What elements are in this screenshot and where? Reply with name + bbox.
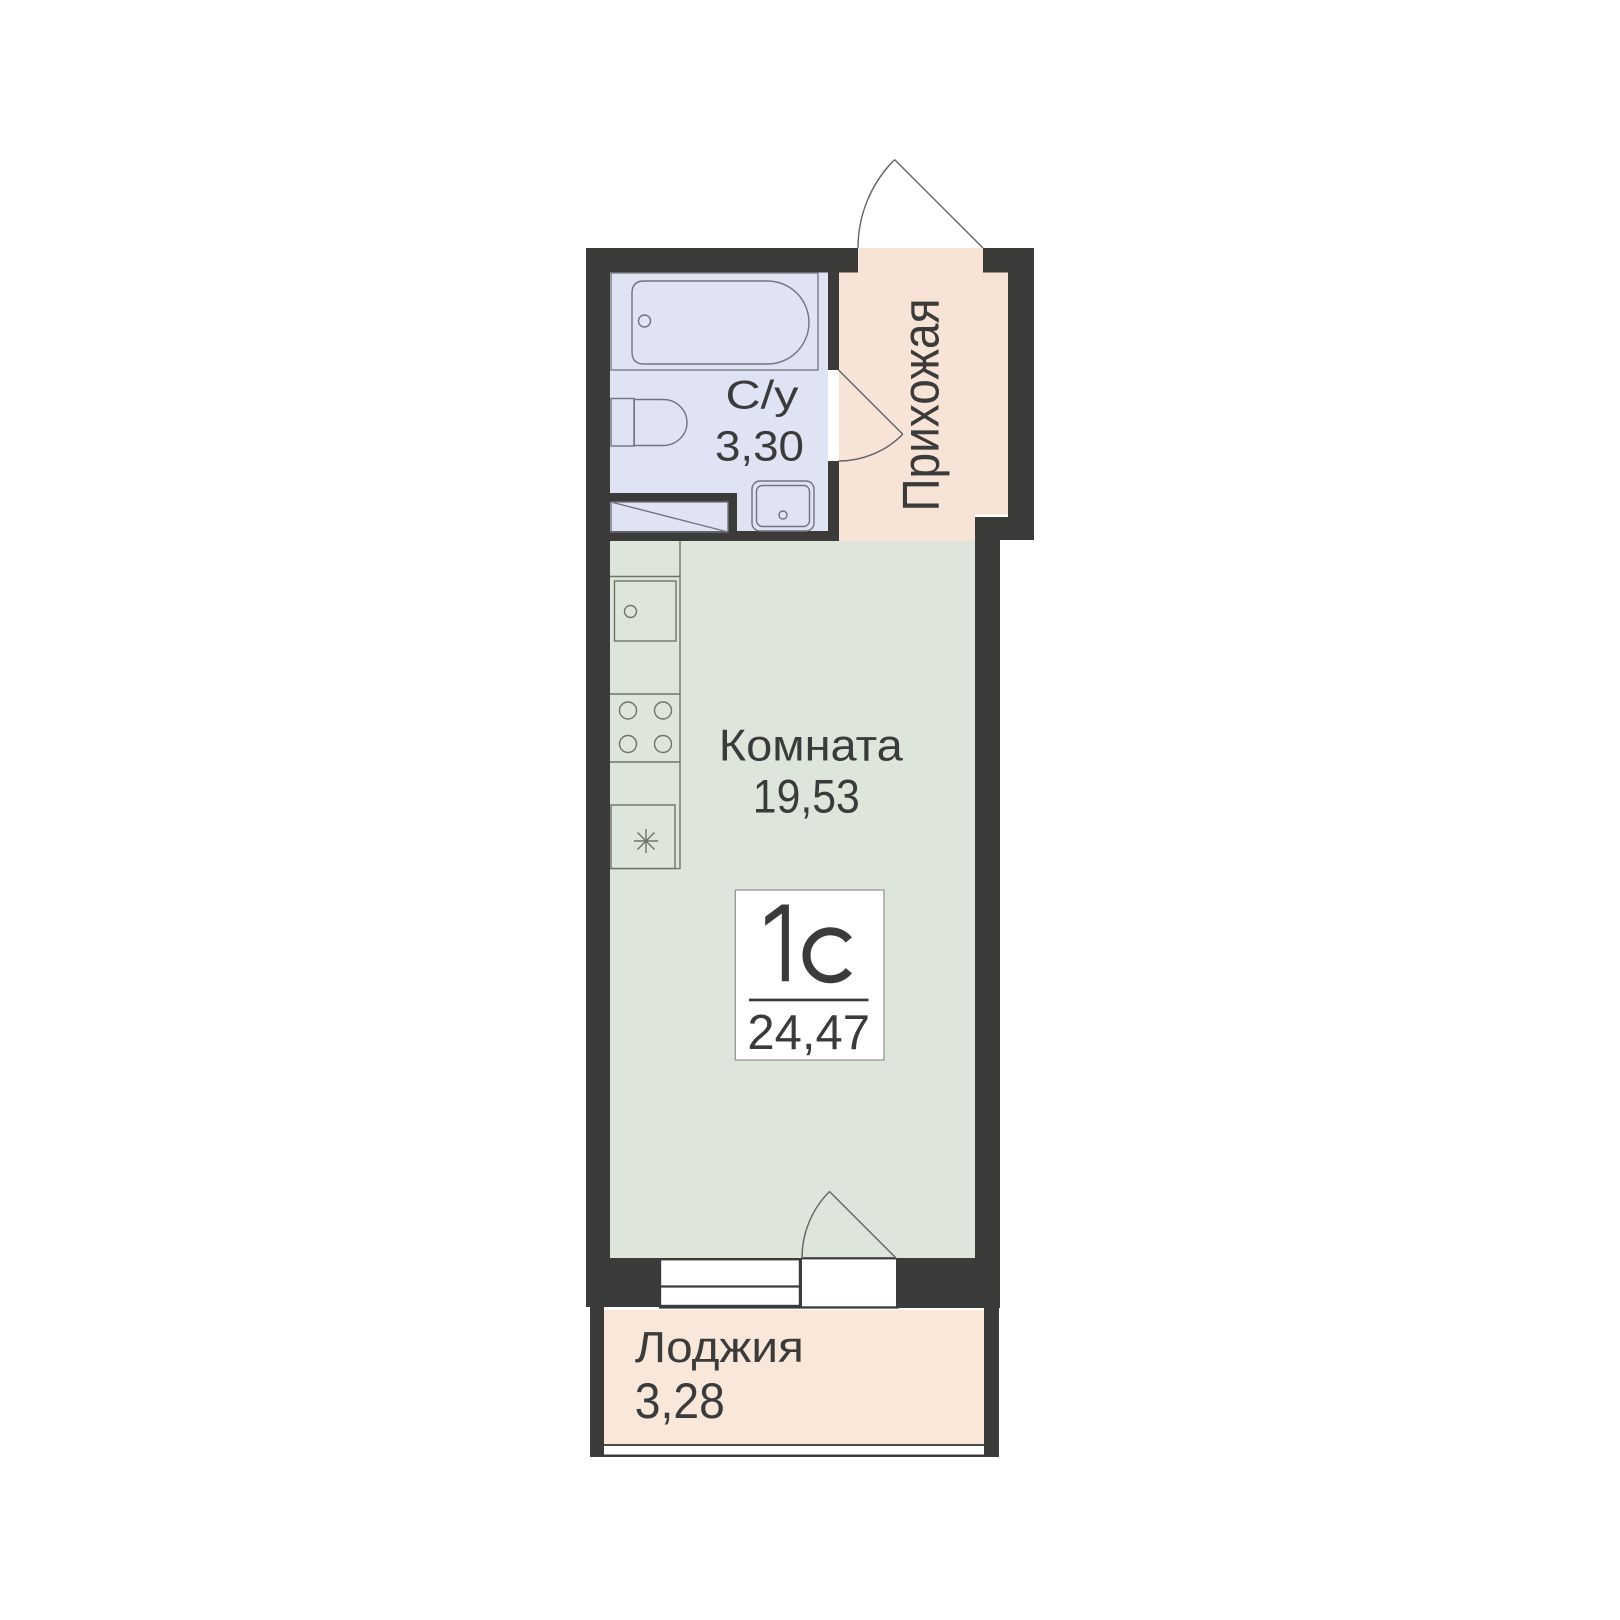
svg-text:3,28: 3,28 [635, 1373, 725, 1429]
svg-text:Комната: Комната [719, 721, 903, 770]
svg-text:19,53: 19,53 [753, 769, 860, 822]
svg-text:24,47: 24,47 [747, 1006, 870, 1060]
svg-text:Прихожая: Прихожая [893, 299, 951, 512]
svg-text:С/у: С/у [726, 372, 800, 417]
svg-text:3,30: 3,30 [715, 422, 804, 470]
svg-text:Лоджия: Лоджия [635, 1324, 804, 1372]
